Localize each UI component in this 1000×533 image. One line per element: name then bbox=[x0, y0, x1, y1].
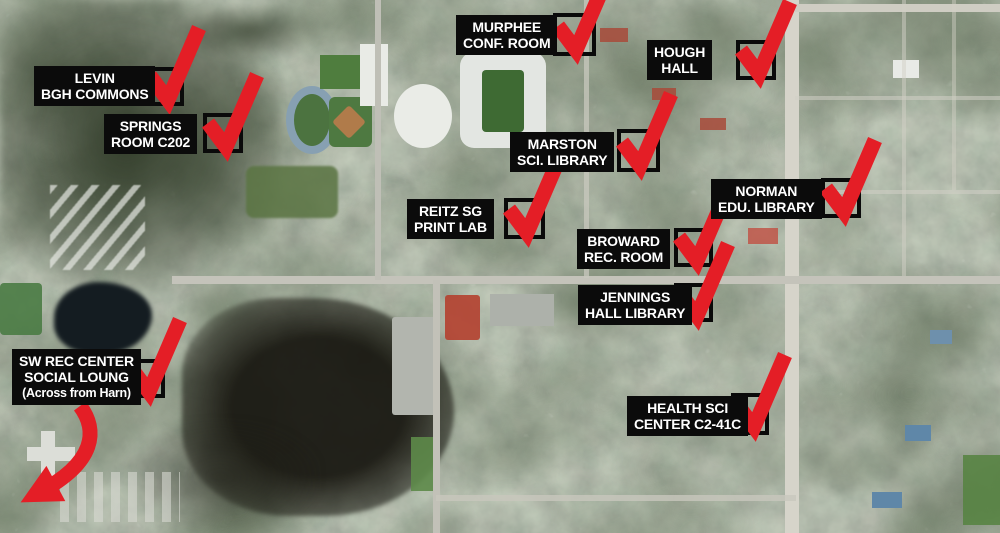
label-line: SCI. LIBRARY bbox=[517, 152, 607, 168]
road-east-v1 bbox=[902, 0, 906, 276]
label-line: HALL bbox=[654, 60, 705, 76]
label-line: SPRINGS bbox=[111, 118, 190, 134]
label-line: PRINT LAB bbox=[414, 219, 487, 235]
label-line: ROOM C202 bbox=[111, 134, 190, 150]
label-line: SOCIAL LOUNG bbox=[19, 369, 134, 385]
label-line: REC. ROOM bbox=[584, 249, 663, 265]
road-vertical-1 bbox=[375, 0, 381, 280]
white-building-east bbox=[893, 60, 919, 78]
blue-roof-2 bbox=[872, 492, 902, 508]
parking-lot-2 bbox=[490, 294, 554, 326]
red-roof-building bbox=[445, 295, 480, 340]
label-jennings-hall-library: JENNINGS HALL LIBRARY bbox=[578, 285, 692, 325]
label-broward-rec-room: BROWARD REC. ROOM bbox=[577, 229, 670, 269]
checkmark-icon bbox=[817, 134, 881, 226]
red-building-4 bbox=[748, 228, 778, 244]
label-line: HEALTH SCI bbox=[634, 400, 741, 416]
white-roof-building bbox=[360, 44, 388, 106]
checkmark-icon bbox=[549, 0, 613, 64]
road-east-v2 bbox=[952, 0, 956, 190]
label-marston-sci-library: MARSTON SCI. LIBRARY bbox=[510, 132, 614, 172]
label-levin-bgh-commons: LEVIN BGH COMMONS bbox=[34, 66, 155, 106]
checkmark-icon bbox=[199, 69, 263, 161]
label-norman-edu-library: NORMAN EDU. LIBRARY bbox=[711, 179, 822, 219]
label-line: REITZ SG bbox=[414, 203, 487, 219]
curved-arrow-icon bbox=[0, 395, 130, 533]
label-line: (Across from Harn) bbox=[19, 385, 134, 401]
label-line: MURPHEE bbox=[463, 19, 550, 35]
label-line: NORMAN bbox=[718, 183, 815, 199]
arena-dome bbox=[394, 84, 452, 148]
label-reitz-sg-print-lab: REITZ SG PRINT LAB bbox=[407, 199, 494, 239]
label-hough-hall: HOUGH HALL bbox=[647, 40, 712, 80]
label-line: MARSTON bbox=[517, 136, 607, 152]
southeast-field bbox=[963, 455, 1000, 525]
red-building-3 bbox=[700, 118, 726, 130]
label-line: SW REC CENTER bbox=[19, 353, 134, 369]
label-murphee-conf-room: MURPHEE CONF. ROOM bbox=[456, 15, 557, 55]
label-line: LEVIN bbox=[41, 70, 148, 86]
campus-map: MURPHEE CONF. ROOM HOUGH HALL LEVIN BGH … bbox=[0, 0, 1000, 533]
label-line: BROWARD bbox=[584, 233, 663, 249]
label-line: BGH COMMONS bbox=[41, 86, 148, 102]
road-south bbox=[436, 495, 796, 501]
checkmark-icon bbox=[613, 88, 677, 180]
blue-roof-1 bbox=[905, 425, 931, 441]
road-top-east bbox=[795, 4, 1000, 12]
open-field bbox=[246, 166, 338, 218]
stadium-field bbox=[482, 70, 524, 132]
label-health-sci-center: HEALTH SCI CENTER C2-41C bbox=[627, 396, 748, 436]
road-east-1 bbox=[795, 96, 1000, 100]
label-line: HALL LIBRARY bbox=[585, 305, 685, 321]
label-line: CONF. ROOM bbox=[463, 35, 550, 51]
label-springs-room-c202: SPRINGS ROOM C202 bbox=[104, 114, 197, 154]
label-line: CENTER C2-41C bbox=[634, 416, 741, 432]
label-line: HOUGH bbox=[654, 44, 705, 60]
parking-lot bbox=[392, 317, 437, 415]
checkmark-icon bbox=[732, 0, 796, 88]
dorm-rows bbox=[50, 185, 145, 270]
blue-roof-3 bbox=[930, 330, 952, 344]
label-line: JENNINGS bbox=[585, 289, 685, 305]
label-line: EDU. LIBRARY bbox=[718, 199, 815, 215]
rec-fields bbox=[0, 283, 42, 335]
label-sw-rec-center: SW REC CENTER SOCIAL LOUNG (Across from … bbox=[12, 349, 141, 405]
